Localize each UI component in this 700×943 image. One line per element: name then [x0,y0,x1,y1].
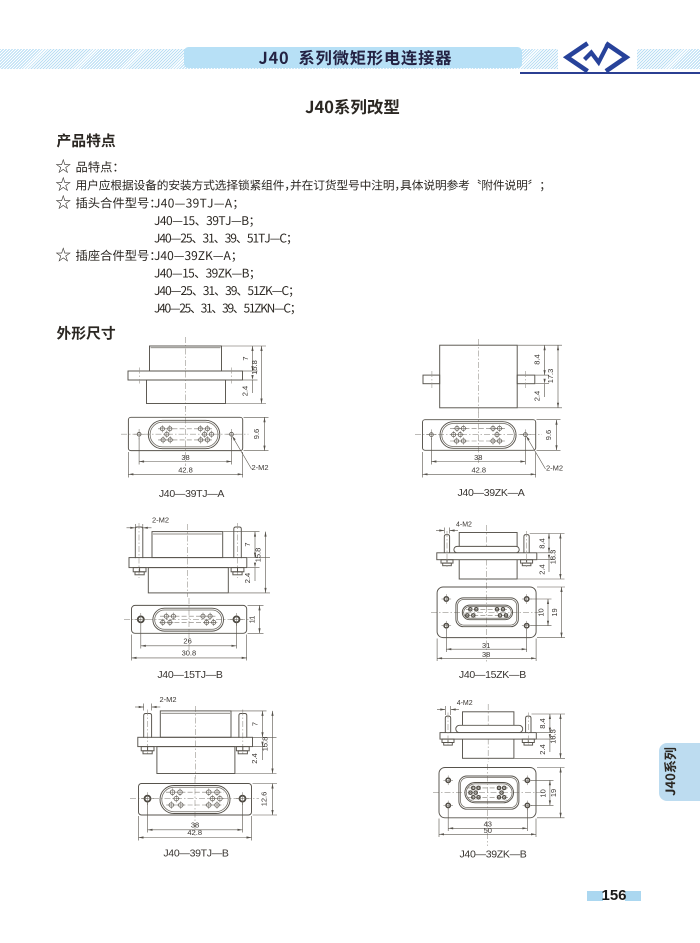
svg-text:18.3: 18.3 [548,550,557,565]
svg-text:8.4: 8.4 [537,538,546,548]
svg-text:J40—39ZK—A: J40—39ZK—A [457,487,524,499]
svg-text:18.3: 18.3 [549,729,558,744]
svg-text:2.4: 2.4 [243,573,252,583]
svg-text:15.8: 15.8 [261,737,270,752]
svg-text:19: 19 [550,608,559,616]
svg-text:J40—39ZK—B: J40—39ZK—B [459,849,526,861]
svg-text:17.3: 17.3 [546,369,555,384]
svg-text:31: 31 [482,641,490,650]
svg-text:10: 10 [537,608,546,616]
svg-text:2.4: 2.4 [250,753,259,763]
svg-text:11: 11 [248,616,257,624]
svg-text:J40—39TJ—A: J40—39TJ—A [159,488,225,500]
svg-text:15.8: 15.8 [250,360,259,375]
svg-text:26: 26 [183,636,191,645]
svg-text:50: 50 [484,826,492,835]
svg-text:4-M2: 4-M2 [456,522,472,529]
svg-text:8.4: 8.4 [533,354,542,364]
svg-text:2.4: 2.4 [241,386,250,396]
svg-text:12.6: 12.6 [260,792,269,807]
svg-text:4-M2: 4-M2 [457,700,473,707]
svg-text:19: 19 [549,789,558,797]
svg-text:2.4: 2.4 [538,744,547,754]
svg-text:42.8: 42.8 [187,828,202,837]
svg-text:7: 7 [251,722,260,726]
svg-text:2-M2: 2-M2 [252,463,269,472]
svg-text:30.8: 30.8 [182,649,197,658]
svg-text:42.8: 42.8 [471,466,486,475]
svg-text:10: 10 [538,789,547,797]
svg-text:9.6: 9.6 [252,429,261,439]
svg-text:38: 38 [482,650,490,659]
svg-text:2-M2: 2-M2 [546,464,563,473]
svg-text:38: 38 [181,453,189,462]
svg-text:2.4: 2.4 [533,391,542,401]
svg-text:J40—15ZK—B: J40—15ZK—B [459,669,526,681]
svg-text:8.4: 8.4 [538,718,547,728]
svg-text:42.8: 42.8 [178,466,193,475]
svg-text:9.6: 9.6 [544,430,553,440]
svg-text:2-M2: 2-M2 [160,695,177,704]
svg-text:15.8: 15.8 [254,548,263,563]
svg-text:2.4: 2.4 [537,564,546,574]
svg-text:7: 7 [243,542,252,546]
svg-text:2-M2: 2-M2 [152,516,169,525]
svg-text:J40—15TJ—B: J40—15TJ—B [157,669,223,681]
svg-text:J40—39TJ—B: J40—39TJ—B [163,848,229,860]
svg-text:38: 38 [474,453,482,462]
svg-text:7: 7 [241,356,250,360]
